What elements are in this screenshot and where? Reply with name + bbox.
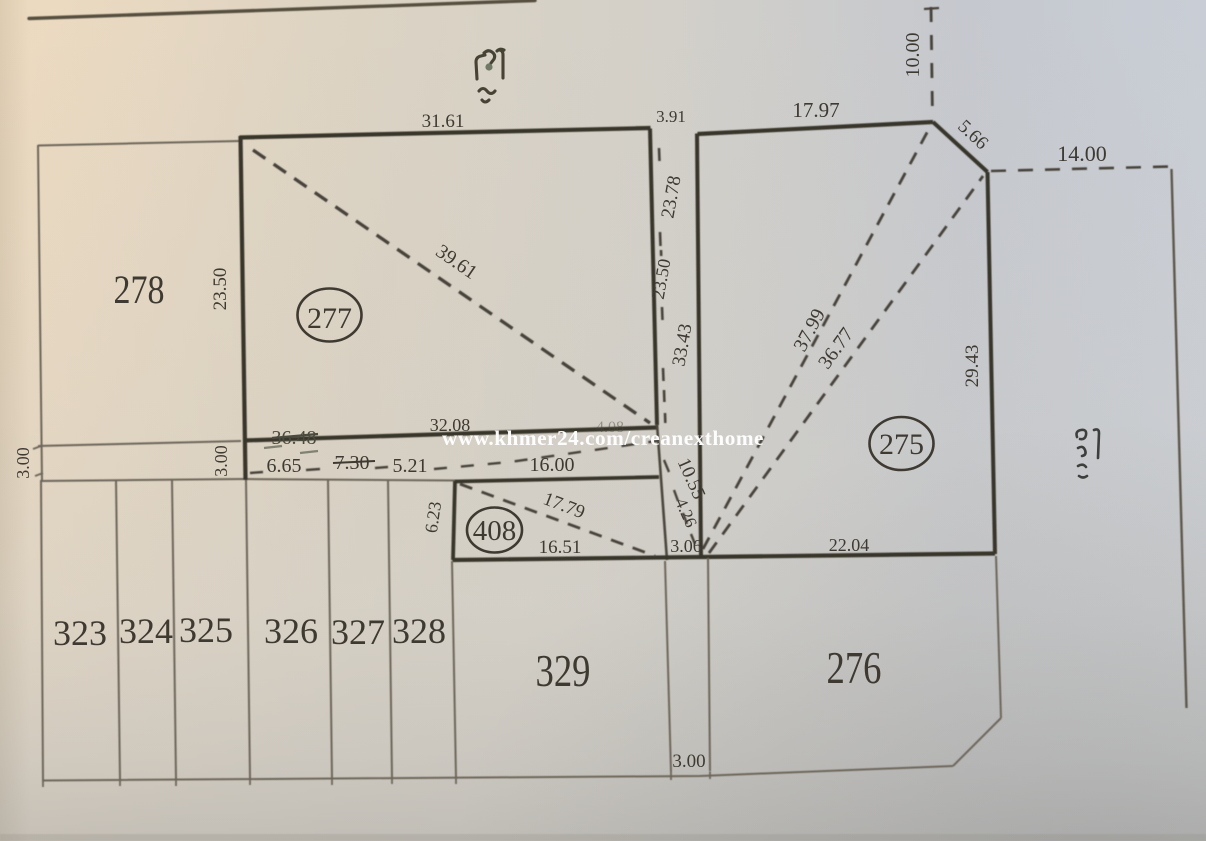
svg-text:323: 323 [53, 613, 107, 653]
svg-text:3.00: 3.00 [211, 445, 231, 477]
svg-text:www.khmer24.com/creanexthome: www.khmer24.com/creanexthome [442, 426, 764, 450]
svg-text:3.00: 3.00 [672, 751, 705, 772]
svg-text:14.00: 14.00 [1057, 141, 1107, 166]
svg-text:277: 277 [307, 302, 352, 335]
svg-text:327: 327 [331, 612, 385, 652]
svg-text:31.61: 31.61 [422, 111, 465, 132]
svg-text:16.51: 16.51 [539, 537, 582, 558]
svg-text:17.97: 17.97 [792, 98, 839, 122]
svg-text:22.04: 22.04 [829, 535, 870, 555]
svg-text:3.06: 3.06 [670, 536, 702, 556]
svg-text:10.00: 10.00 [902, 33, 924, 78]
svg-text:5.21: 5.21 [393, 455, 428, 477]
svg-text:3.91: 3.91 [656, 107, 686, 126]
svg-text:325: 325 [179, 610, 233, 650]
svg-text:326: 326 [264, 611, 318, 651]
svg-text:408: 408 [473, 515, 517, 547]
svg-text:23.50: 23.50 [210, 268, 231, 311]
svg-text:29.43: 29.43 [962, 345, 983, 388]
svg-text:276: 276 [827, 642, 882, 693]
svg-text:278: 278 [114, 267, 165, 312]
svg-text:16.00: 16.00 [530, 454, 575, 476]
svg-text:3.00: 3.00 [13, 447, 33, 479]
svg-text:328: 328 [392, 611, 446, 651]
svg-text:324: 324 [119, 611, 173, 651]
svg-text:275: 275 [879, 428, 924, 461]
svg-text:6.65: 6.65 [267, 455, 302, 477]
svg-text:329: 329 [536, 645, 591, 696]
